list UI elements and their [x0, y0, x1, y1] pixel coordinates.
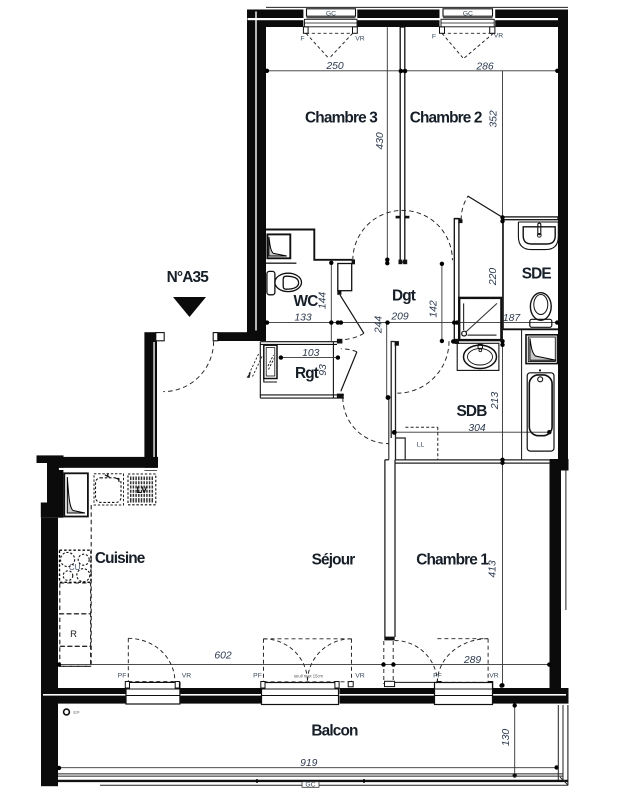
svg-text:144: 144 [318, 292, 329, 310]
svg-text:PF: PF [433, 673, 442, 680]
svg-text:seuil max 15cm: seuil max 15cm [294, 673, 324, 678]
svg-text:EP: EP [73, 710, 79, 715]
svg-text:413: 413 [488, 560, 499, 578]
svg-text:93: 93 [318, 364, 329, 376]
svg-text:103: 103 [302, 348, 320, 359]
svg-text:F: F [432, 34, 436, 41]
svg-text:Séjour: Séjour [312, 551, 356, 568]
svg-text:142: 142 [429, 300, 440, 318]
svg-text:304: 304 [468, 423, 486, 434]
svg-text:244: 244 [374, 316, 385, 335]
svg-text:Cuisine: Cuisine [95, 550, 146, 567]
svg-text:352: 352 [489, 110, 500, 128]
svg-text:250: 250 [325, 61, 344, 72]
svg-text:133: 133 [294, 313, 312, 324]
svg-text:VR: VR [182, 673, 192, 680]
svg-text:LV: LV [137, 485, 148, 495]
svg-text:VR: VR [355, 673, 365, 680]
svg-text:GC: GC [463, 10, 473, 17]
svg-text:PF: PF [118, 673, 127, 680]
svg-text:213: 213 [490, 392, 501, 411]
svg-text:187: 187 [503, 313, 522, 324]
svg-text:SDE: SDE [522, 266, 552, 283]
svg-text:Chambre 1: Chambre 1 [416, 551, 489, 568]
svg-text:286: 286 [475, 62, 494, 73]
svg-text:130: 130 [501, 729, 512, 747]
svg-text:209: 209 [390, 312, 409, 323]
svg-text:SDB: SDB [457, 403, 488, 420]
svg-text:430: 430 [375, 132, 386, 150]
svg-text:VR: VR [489, 673, 499, 680]
svg-text:VR: VR [355, 36, 365, 43]
svg-text:Chambre 3: Chambre 3 [305, 110, 377, 127]
svg-text:289: 289 [463, 655, 482, 666]
svg-text:GC: GC [305, 782, 315, 789]
svg-text:WC: WC [294, 293, 319, 310]
svg-text:F: F [300, 36, 304, 43]
svg-text:Balcon: Balcon [311, 723, 358, 740]
svg-text:PF: PF [253, 673, 262, 680]
svg-text:LL: LL [417, 442, 425, 449]
svg-text:Rgt: Rgt [295, 365, 319, 382]
svg-text:Chambre 2: Chambre 2 [410, 110, 482, 127]
svg-text:Dgt: Dgt [392, 288, 416, 305]
svg-text:602: 602 [214, 651, 232, 662]
svg-text:N°A35: N°A35 [167, 269, 210, 286]
svg-text:919: 919 [300, 758, 318, 769]
svg-text:GC: GC [326, 10, 336, 17]
svg-text:220: 220 [488, 268, 499, 287]
svg-text:R: R [70, 629, 77, 640]
